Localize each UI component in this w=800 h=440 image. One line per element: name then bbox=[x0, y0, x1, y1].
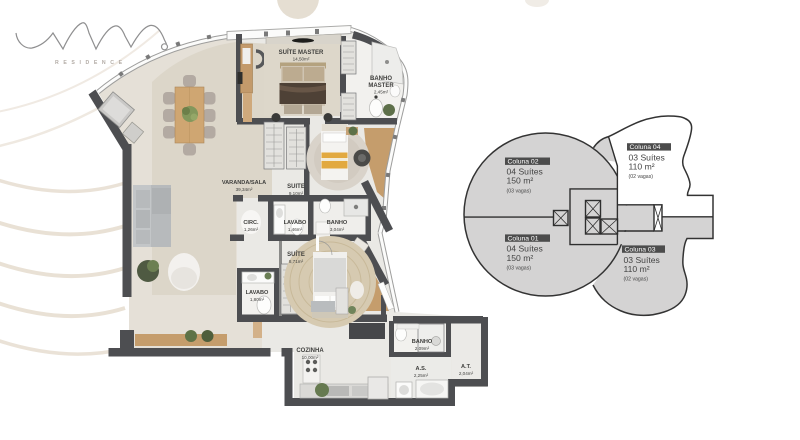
svg-text:LAVABO: LAVABO bbox=[246, 290, 269, 296]
svg-text:SUÍTE MASTER: SUÍTE MASTER bbox=[279, 48, 324, 56]
svg-text:2,25m²: 2,25m² bbox=[414, 373, 429, 378]
svg-text:150 m²: 150 m² bbox=[507, 253, 534, 263]
svg-text:8,71m²: 8,71m² bbox=[289, 259, 304, 264]
svg-text:(02 vagas): (02 vagas) bbox=[624, 277, 649, 283]
svg-text:SUÍTE: SUÍTE bbox=[287, 250, 305, 258]
svg-text:A.T.: A.T. bbox=[461, 364, 471, 370]
svg-text:39,34m²: 39,34m² bbox=[236, 187, 253, 192]
svg-text:Coluna 01: Coluna 01 bbox=[508, 235, 539, 242]
svg-text:(03 vagas): (03 vagas) bbox=[507, 188, 532, 194]
svg-text:COZINHA: COZINHA bbox=[296, 348, 324, 354]
svg-text:14,50m²: 14,50m² bbox=[293, 57, 310, 62]
svg-text:3,04m²: 3,04m² bbox=[330, 227, 345, 232]
svg-text:2,45m²: 2,45m² bbox=[374, 90, 389, 95]
svg-text:2,04m²: 2,04m² bbox=[459, 371, 474, 376]
svg-text:Coluna 04: Coluna 04 bbox=[630, 144, 661, 151]
svg-text:CIRC.: CIRC. bbox=[243, 220, 259, 226]
svg-text:VARANDA/SALA: VARANDA/SALA bbox=[222, 180, 266, 186]
svg-text:1,46m²: 1,46m² bbox=[288, 227, 303, 232]
svg-text:BANHO: BANHO bbox=[327, 220, 348, 226]
svg-text:150 m²: 150 m² bbox=[507, 175, 534, 185]
svg-text:1,26m²: 1,26m² bbox=[244, 227, 259, 232]
svg-text:9,10m²: 9,10m² bbox=[289, 191, 304, 196]
svg-text:2,09m²: 2,09m² bbox=[415, 346, 430, 351]
svg-text:BANHO: BANHO bbox=[412, 339, 433, 345]
svg-text:BANHO: BANHO bbox=[370, 76, 392, 82]
svg-text:Coluna 02: Coluna 02 bbox=[508, 158, 539, 165]
svg-text:1,80m²: 1,80m² bbox=[250, 297, 265, 302]
svg-text:(03 vagas): (03 vagas) bbox=[507, 265, 532, 271]
svg-text:A.S.: A.S. bbox=[416, 366, 427, 372]
svg-text:SUITE: SUITE bbox=[287, 184, 305, 190]
svg-text:10,00m²: 10,00m² bbox=[302, 355, 319, 360]
svg-text:(02 vagas): (02 vagas) bbox=[629, 174, 654, 180]
svg-text:110 m²: 110 m² bbox=[624, 264, 650, 274]
svg-text:MASTER: MASTER bbox=[368, 83, 394, 89]
svg-text:RESIDENCE: RESIDENCE bbox=[55, 60, 127, 66]
svg-text:LAVABO: LAVABO bbox=[284, 220, 307, 226]
svg-text:Coluna 03: Coluna 03 bbox=[625, 247, 656, 254]
svg-text:110 m²: 110 m² bbox=[629, 162, 655, 172]
svg-text:04 Suítes: 04 Suítes bbox=[507, 244, 543, 254]
